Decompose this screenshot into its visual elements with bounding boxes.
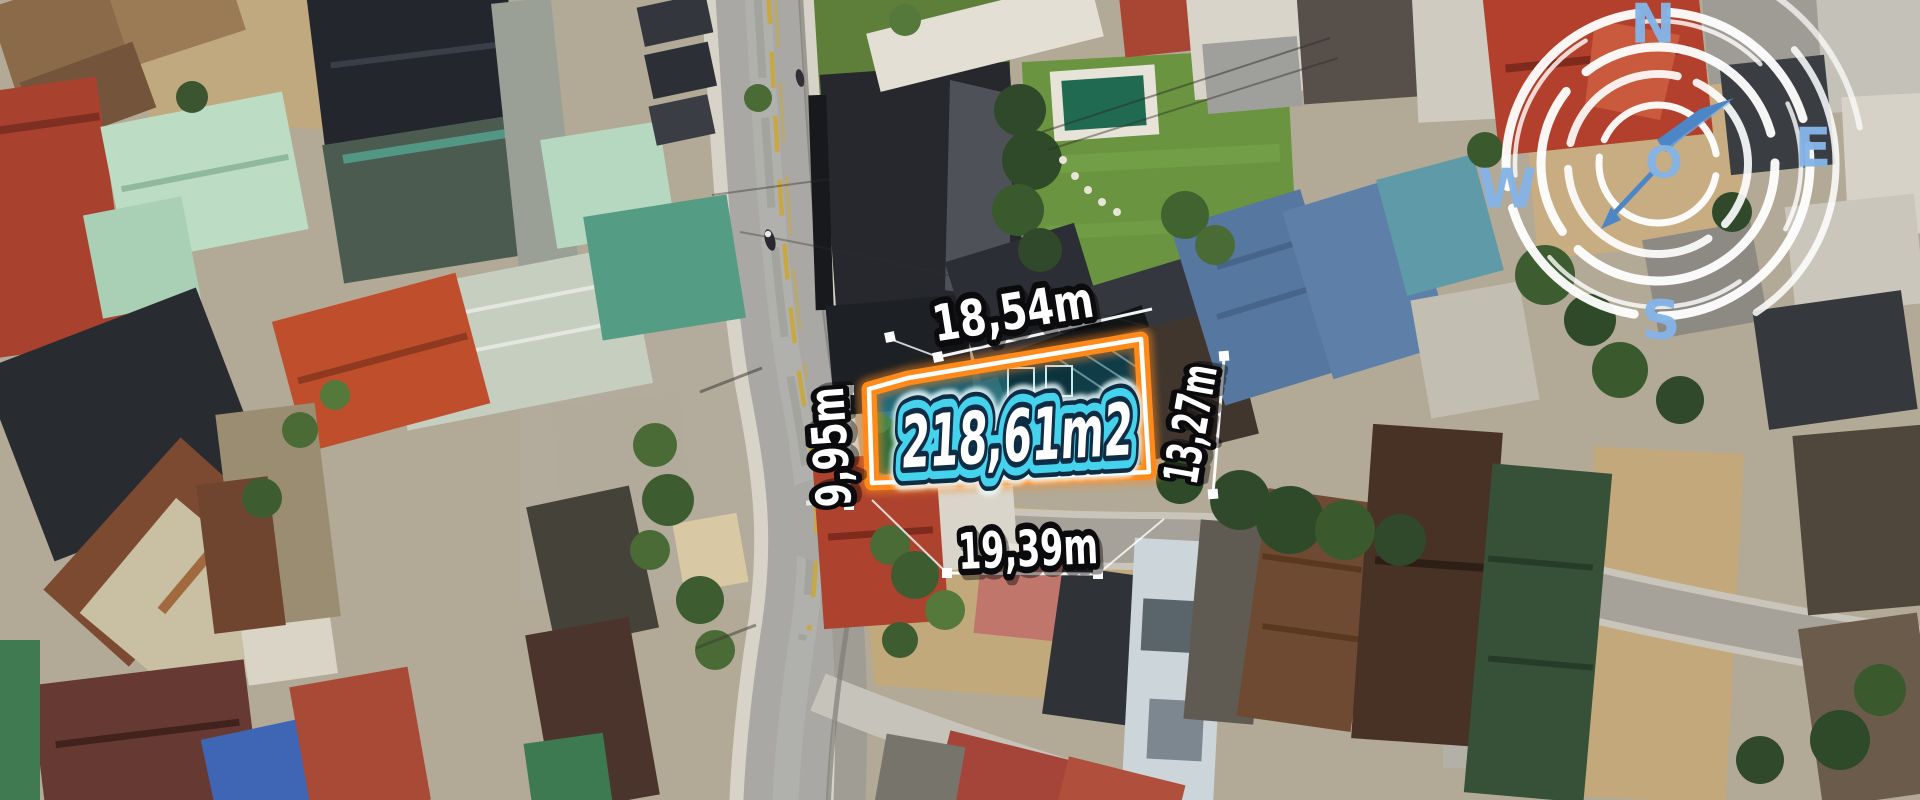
measurement-bottom-label: 19,39m 19,39m — [957, 517, 1103, 586]
svg-text:19,39m: 19,39m — [957, 517, 1099, 581]
compass-east-label: E — [1795, 117, 1832, 180]
plot-area-label: 218,61m2 218,61m2 218,61m2 218,61m2 — [899, 388, 1135, 485]
compass-west-label: W — [1477, 158, 1537, 221]
svg-text:218,61m2: 218,61m2 — [899, 388, 1135, 485]
compass-south-label: S — [1642, 289, 1681, 352]
aerial-map: 218,61m2 218,61m2 218,61m2 218,61m2 18,5… — [0, 0, 1920, 800]
svg-text:9,95m: 9,95m — [799, 385, 863, 509]
aerial-listing-screenshot: 218,61m2 218,61m2 218,61m2 218,61m2 18,5… — [0, 0, 1920, 800]
compass-center-label: O — [1645, 138, 1682, 189]
compass-north-label: N — [1630, 0, 1675, 56]
measurement-left-label: 9,95m 9,95m — [799, 382, 868, 509]
